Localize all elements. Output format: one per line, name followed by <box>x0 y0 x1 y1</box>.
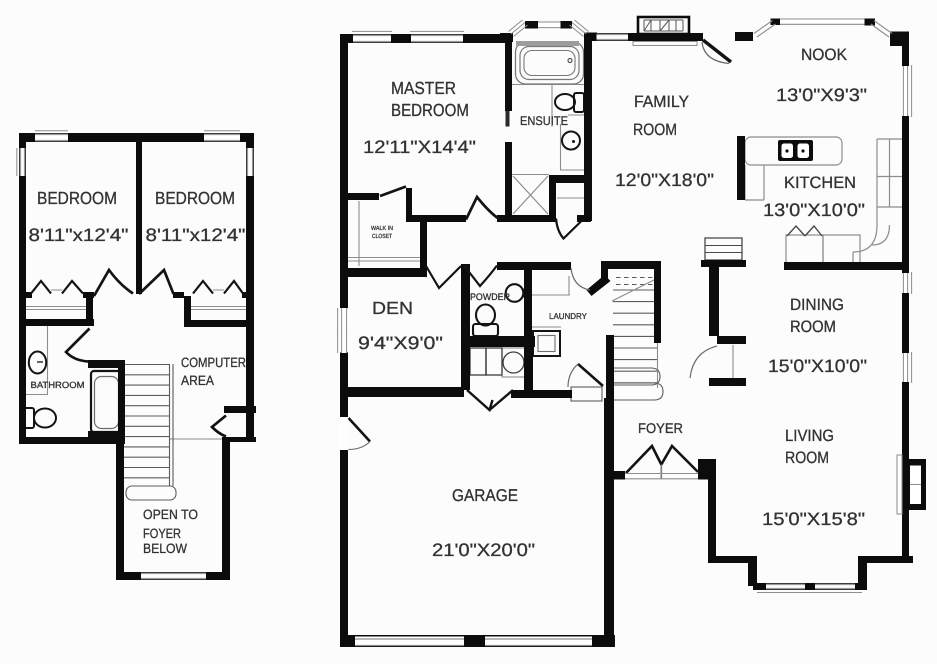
svg-text:ROOM: ROOM <box>785 449 829 467</box>
svg-text:BEDROOM: BEDROOM <box>391 100 469 120</box>
svg-text:ENSUITE: ENSUITE <box>520 114 568 128</box>
svg-text:BATHROOM: BATHROOM <box>31 380 85 390</box>
svg-text:8'11"x12'4": 8'11"x12'4" <box>146 225 246 245</box>
svg-text:CLOSET: CLOSET <box>372 233 392 240</box>
svg-text:8'11"x12'4": 8'11"x12'4" <box>29 225 129 245</box>
svg-text:MASTER: MASTER <box>391 78 456 98</box>
svg-text:15'0"X10'0": 15'0"X10'0" <box>768 356 867 376</box>
svg-text:15'0"X15'8": 15'0"X15'8" <box>762 509 865 529</box>
svg-text:9'4"X9'0": 9'4"X9'0" <box>358 333 443 353</box>
svg-text:KITCHEN: KITCHEN <box>784 174 856 192</box>
svg-text:BEDROOM: BEDROOM <box>37 188 117 208</box>
svg-text:LIVING: LIVING <box>785 427 834 445</box>
svg-text:ROOM: ROOM <box>633 121 677 139</box>
svg-text:NOOK: NOOK <box>801 46 847 64</box>
svg-text:13'0"X9'3": 13'0"X9'3" <box>776 85 867 105</box>
svg-text:BELOW: BELOW <box>143 541 187 556</box>
svg-text:LAUNDRY: LAUNDRY <box>549 311 587 321</box>
svg-text:POWDER: POWDER <box>470 292 510 303</box>
svg-text:13'0"X10'0": 13'0"X10'0" <box>763 200 865 220</box>
svg-text:FAMILY: FAMILY <box>634 93 689 111</box>
svg-text:BEDROOM: BEDROOM <box>155 188 235 208</box>
svg-text:GARAGE: GARAGE <box>452 486 518 505</box>
svg-text:DINING: DINING <box>790 296 844 314</box>
svg-text:WALK IN: WALK IN <box>371 225 393 232</box>
svg-text:DEN: DEN <box>372 298 413 318</box>
svg-text:FOYER: FOYER <box>638 420 683 436</box>
svg-text:12'11"X14'4": 12'11"X14'4" <box>363 137 476 157</box>
svg-text:ROOM: ROOM <box>790 318 836 336</box>
svg-text:OPEN TO: OPEN TO <box>143 507 198 522</box>
svg-text:COMPUTER: COMPUTER <box>181 355 246 370</box>
svg-text:12'0"X18'0": 12'0"X18'0" <box>615 170 714 190</box>
svg-text:AREA: AREA <box>181 373 214 388</box>
svg-text:21'0"X20'0": 21'0"X20'0" <box>432 540 535 560</box>
svg-text:FOYER: FOYER <box>143 526 181 541</box>
